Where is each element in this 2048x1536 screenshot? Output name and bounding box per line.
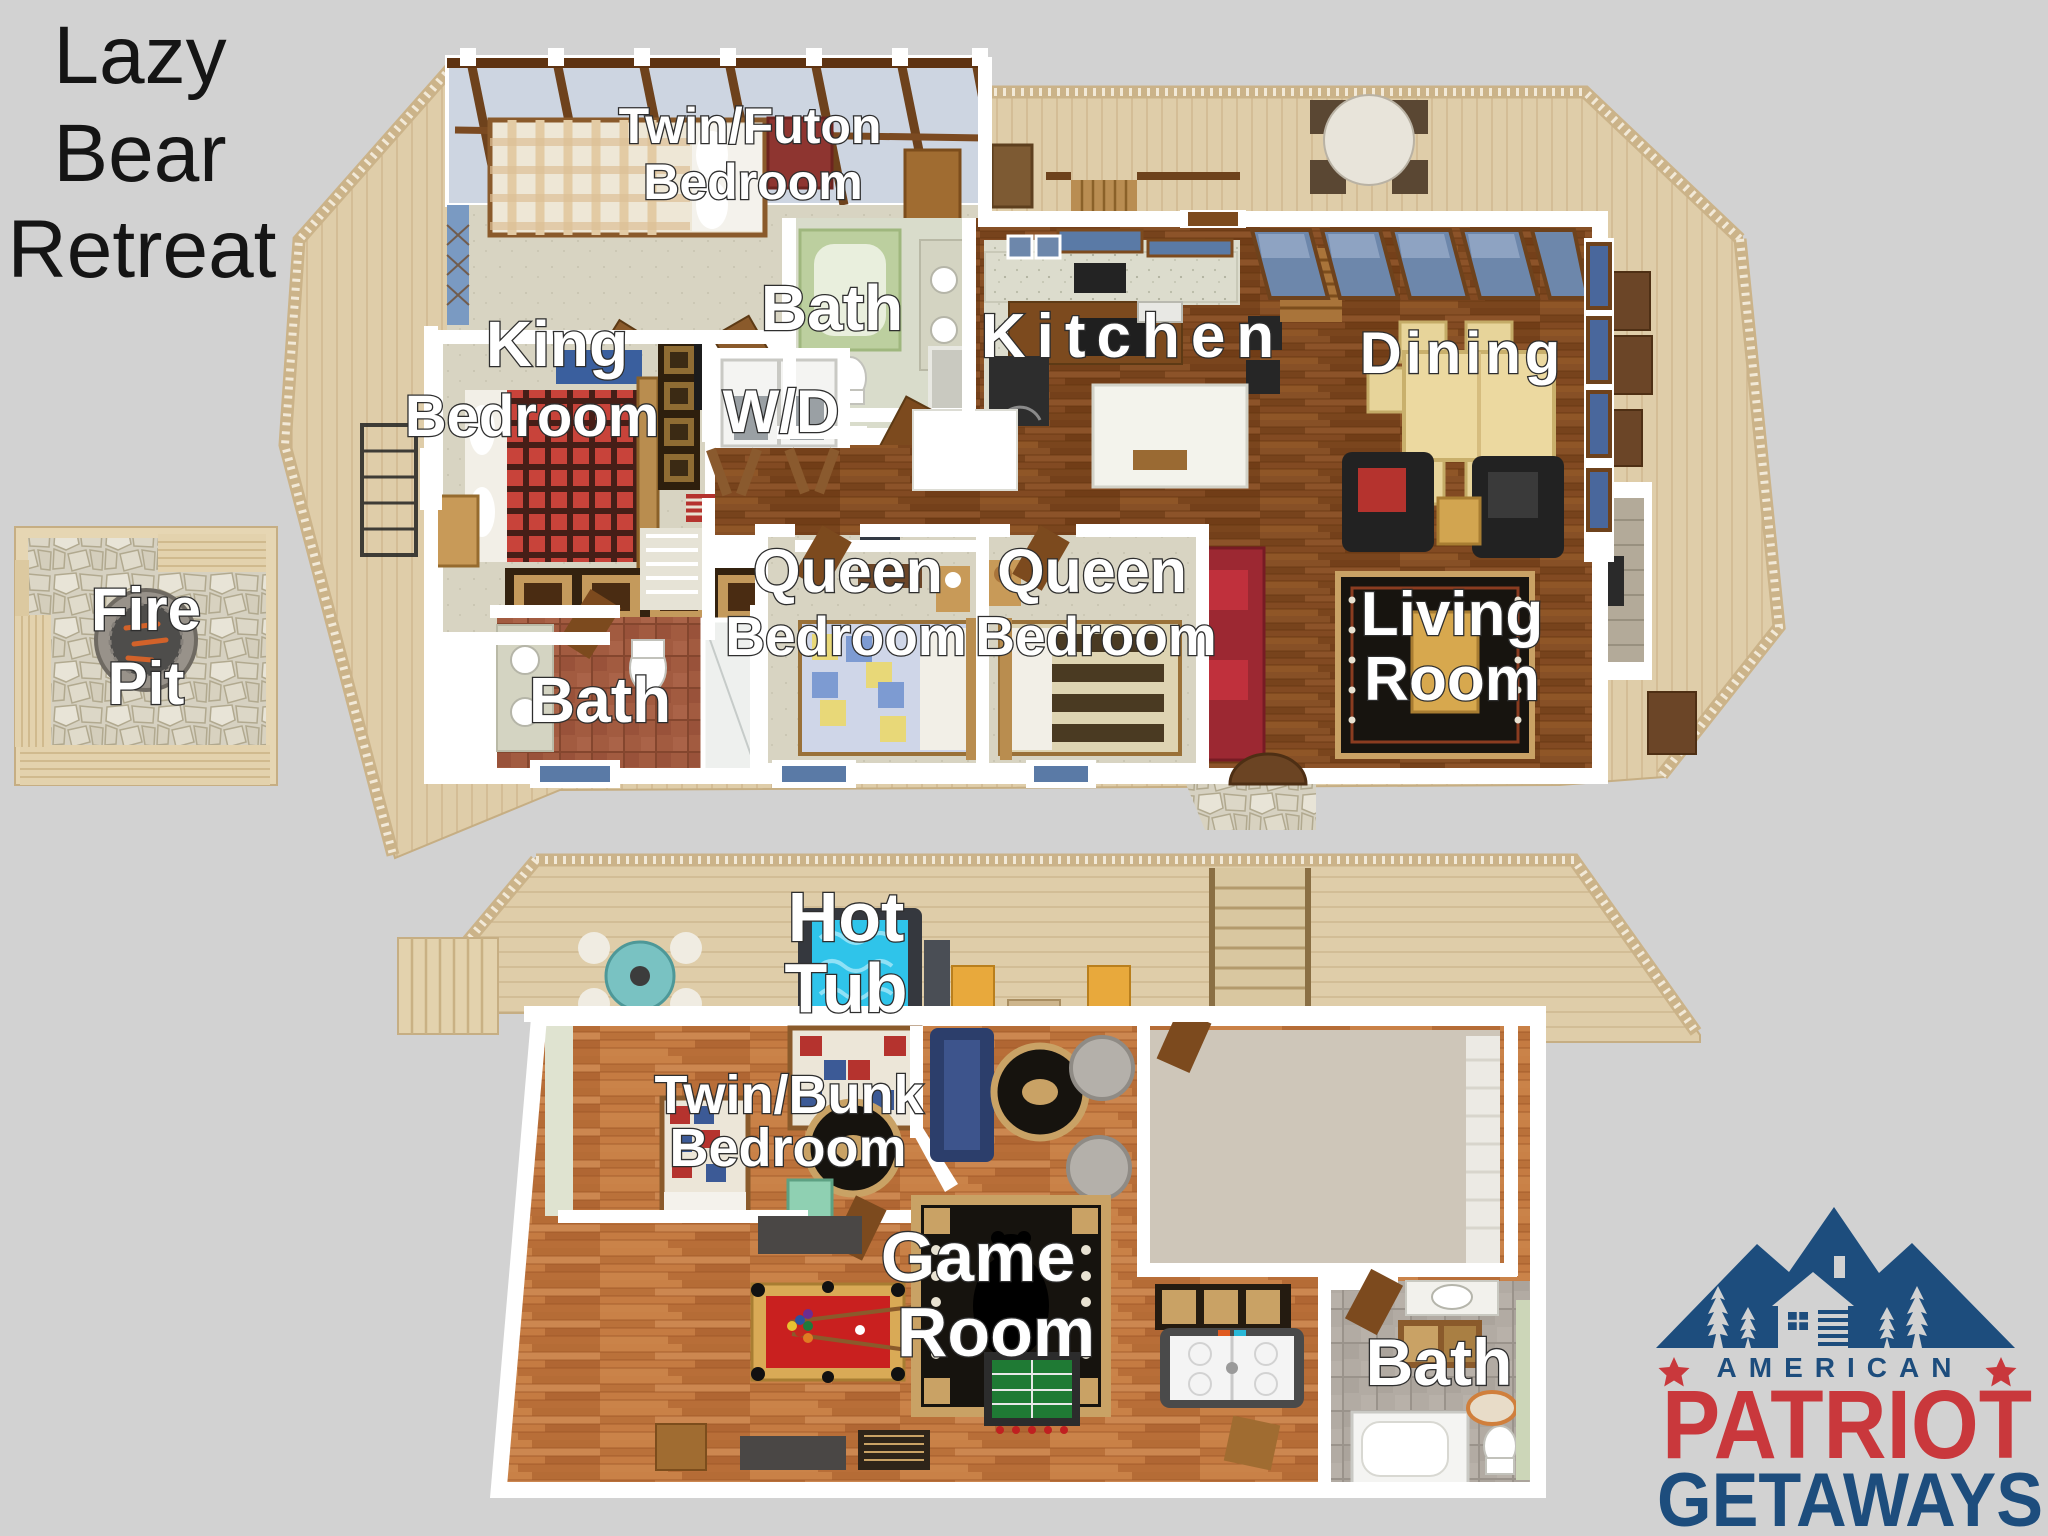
svg-text:Queen: Queen <box>753 537 943 605</box>
svg-text:Hot: Hot <box>788 878 905 956</box>
svg-text:Dining: Dining <box>1360 321 1564 386</box>
svg-text:Queen: Queen <box>997 537 1187 605</box>
svg-text:Twin/Futon: Twin/Futon <box>619 98 882 154</box>
svg-text:Bedroom: Bedroom <box>643 154 862 210</box>
svg-text:Bedroom: Bedroom <box>725 605 966 667</box>
svg-text:Bath: Bath <box>529 664 671 736</box>
svg-text:Game: Game <box>881 1218 1076 1296</box>
svg-text:Bedroom: Bedroom <box>405 384 660 449</box>
svg-text:Bath: Bath <box>761 272 903 344</box>
svg-text:King: King <box>486 308 628 380</box>
svg-text:W/D: W/D <box>723 378 840 445</box>
svg-text:GETAWAYS: GETAWAYS <box>1657 1458 2043 1536</box>
svg-text:Bedroom: Bedroom <box>975 605 1216 667</box>
svg-text:Kitchen: Kitchen <box>981 302 1285 371</box>
svg-text:Bath: Bath <box>1366 1325 1513 1399</box>
svg-text:Fire: Fire <box>91 576 201 643</box>
svg-text:Retreat: Retreat <box>8 204 277 295</box>
svg-text:Lazy: Lazy <box>53 10 226 101</box>
svg-text:Room: Room <box>897 1293 1095 1371</box>
svg-text:Bedroom: Bedroom <box>669 1118 906 1178</box>
svg-text:Room: Room <box>1364 645 1540 714</box>
svg-text:Living: Living <box>1361 580 1544 649</box>
svg-text:Tub: Tub <box>784 949 907 1027</box>
svg-text:Pit: Pit <box>108 650 185 717</box>
svg-text:Twin/Bunk: Twin/Bunk <box>655 1065 925 1125</box>
svg-text:Bear: Bear <box>53 108 226 199</box>
